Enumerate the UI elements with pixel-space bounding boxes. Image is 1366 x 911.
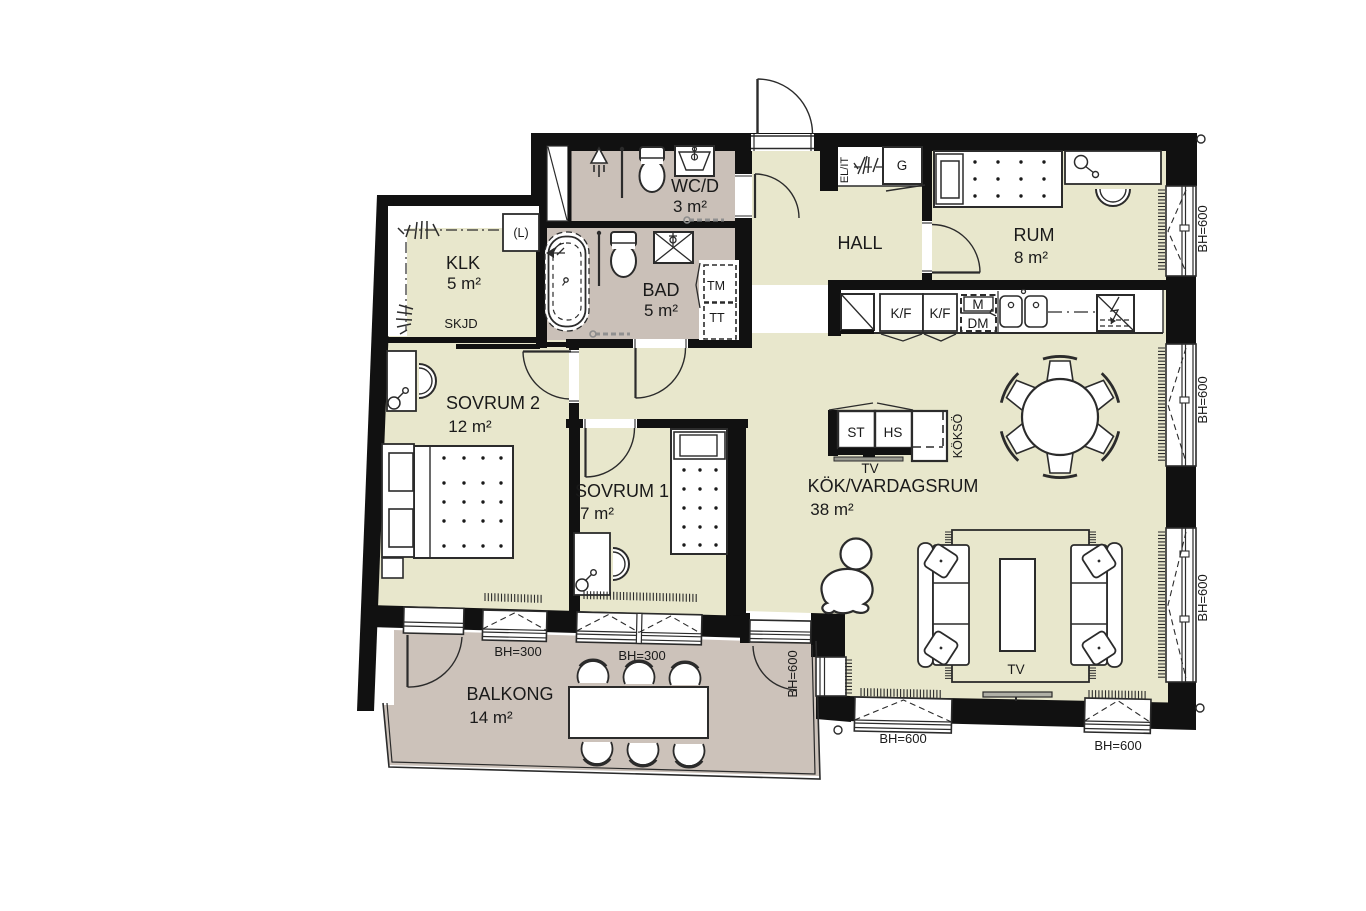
svg-text:SOVRUM 1: SOVRUM 1: [575, 481, 669, 501]
svg-text:BH=300: BH=300: [618, 648, 665, 663]
svg-text:G: G: [897, 158, 908, 173]
svg-text:38 m²: 38 m²: [810, 500, 854, 519]
svg-text:8 m²: 8 m²: [1014, 248, 1048, 267]
svg-text:BH=600: BH=600: [1195, 205, 1210, 252]
svg-text:EL/IT: EL/IT: [839, 157, 851, 184]
svg-text:BALKONG: BALKONG: [466, 684, 553, 704]
svg-text:7 m²: 7 m²: [580, 504, 614, 523]
svg-text:SOVRUM 2: SOVRUM 2: [446, 393, 540, 413]
svg-text:K/F: K/F: [929, 306, 950, 321]
svg-text:14 m²: 14 m²: [469, 708, 513, 727]
svg-text:BH=300: BH=300: [494, 644, 541, 659]
svg-text:TV: TV: [861, 461, 878, 476]
svg-text:BH=600: BH=600: [879, 731, 926, 746]
svg-text:TV: TV: [1007, 662, 1024, 677]
svg-text:BH=600: BH=600: [785, 650, 800, 697]
svg-text:5 m²: 5 m²: [447, 274, 481, 293]
svg-text:BH=600: BH=600: [1094, 738, 1141, 753]
svg-text:WC/D: WC/D: [671, 176, 719, 196]
svg-text:TM: TM: [707, 279, 725, 293]
svg-text:5 m²: 5 m²: [644, 301, 678, 320]
svg-text:TT: TT: [709, 311, 725, 325]
svg-text:KÖKSÖ: KÖKSÖ: [951, 413, 965, 458]
svg-text:KLK: KLK: [446, 253, 480, 273]
svg-text:K/F: K/F: [890, 306, 911, 321]
svg-text:KÖK/VARDAGSRUM: KÖK/VARDAGSRUM: [808, 476, 979, 496]
svg-text:HALL: HALL: [837, 233, 882, 253]
svg-text:BH=600: BH=600: [1195, 376, 1210, 423]
svg-text:BAD: BAD: [642, 280, 679, 300]
svg-text:12 m²: 12 m²: [448, 417, 492, 436]
svg-text:ST: ST: [847, 425, 864, 440]
svg-text:HS: HS: [884, 425, 903, 440]
svg-text:RUM: RUM: [1014, 225, 1055, 245]
svg-text:DM: DM: [968, 316, 989, 331]
svg-text:SKJD: SKJD: [444, 316, 477, 331]
svg-text:(L): (L): [513, 226, 528, 240]
svg-text:3 m²: 3 m²: [673, 197, 707, 216]
svg-text:M: M: [972, 297, 983, 312]
svg-text:BH=600: BH=600: [1195, 574, 1210, 621]
